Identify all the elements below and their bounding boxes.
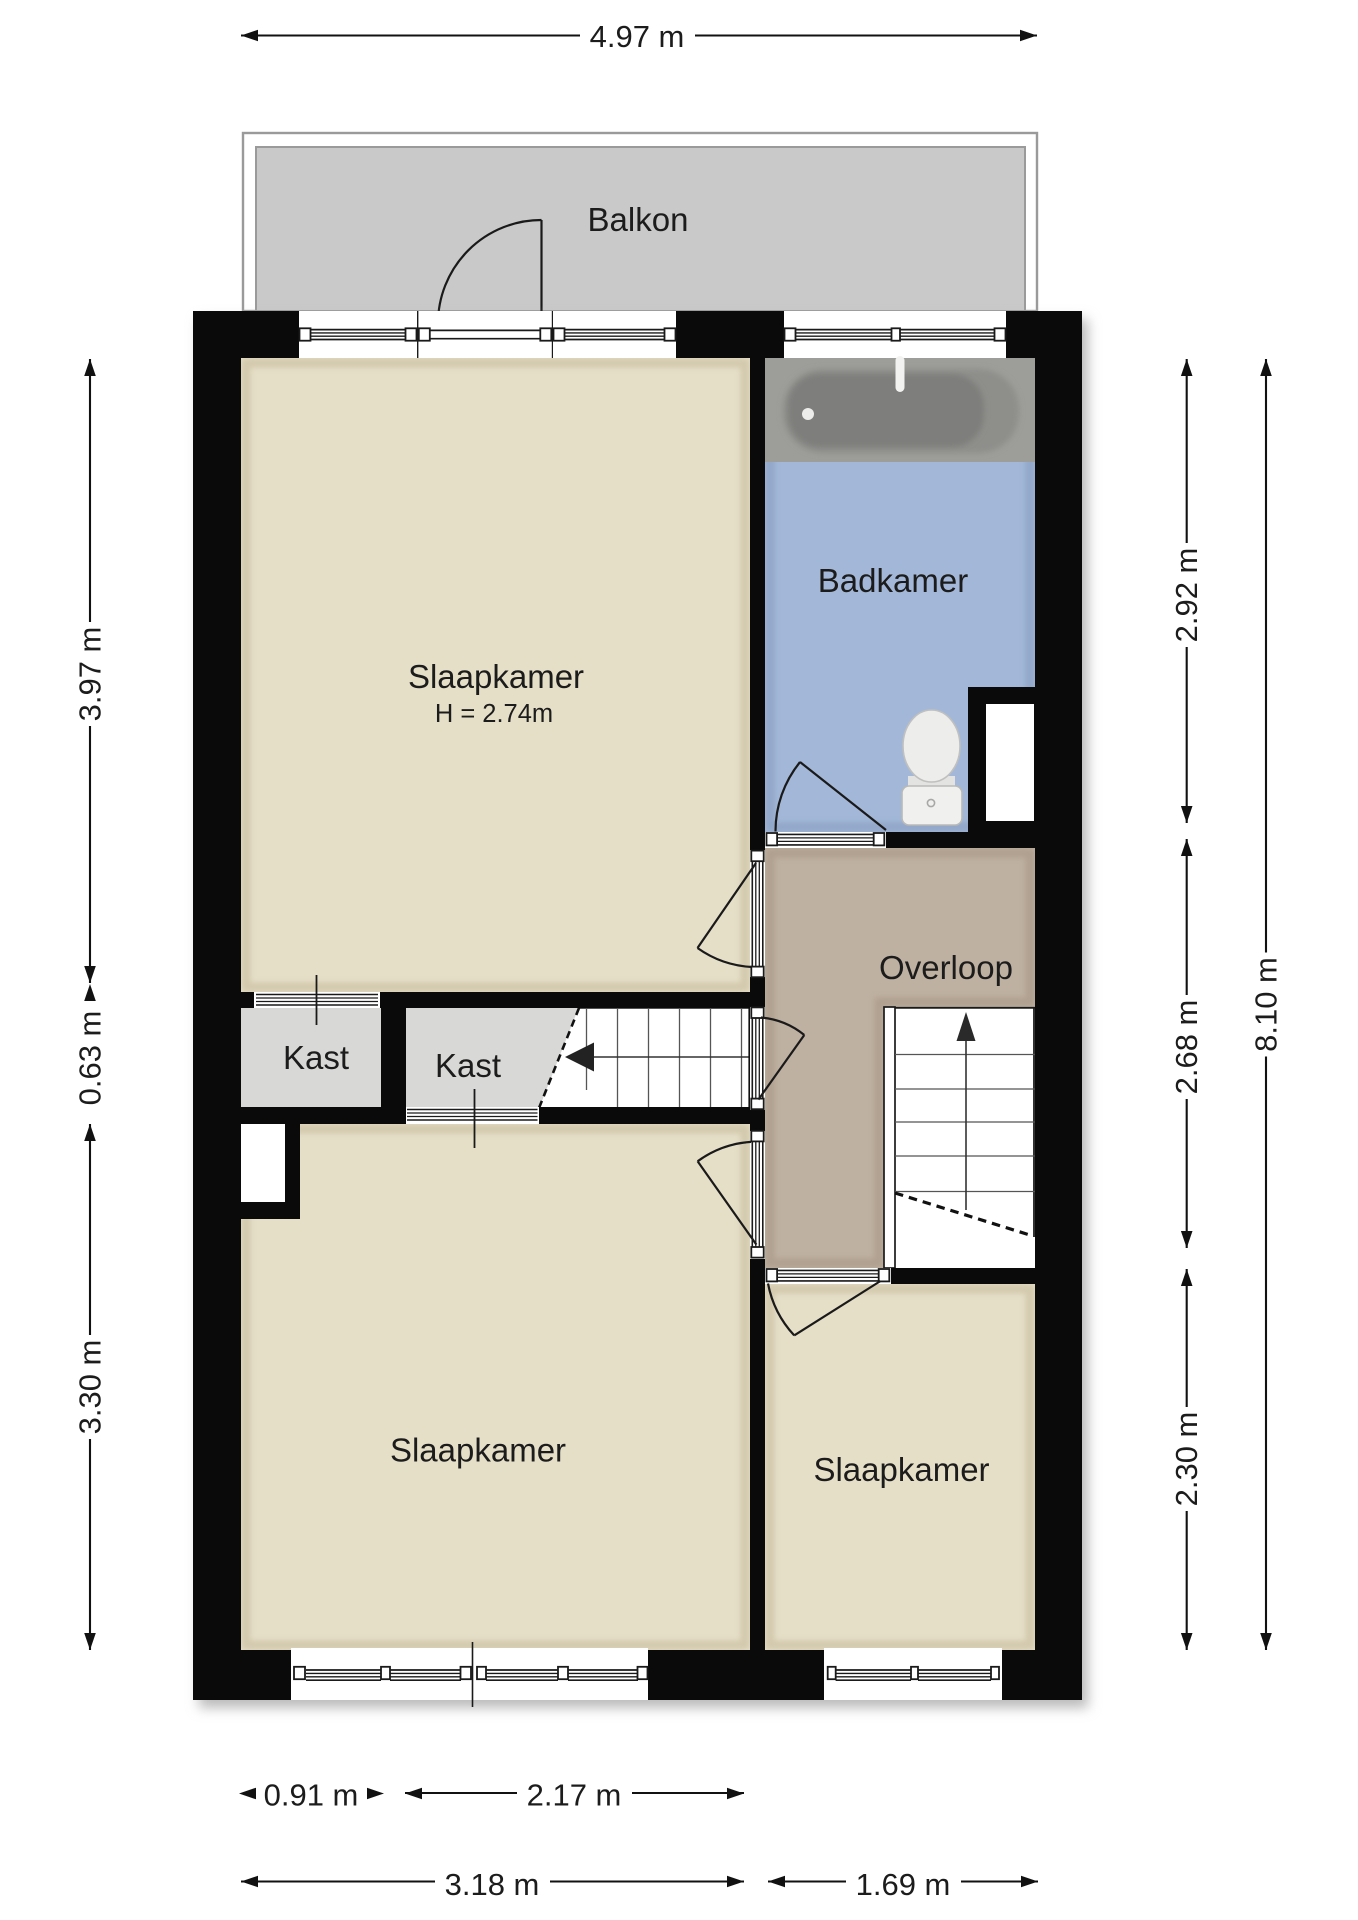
svg-text:Balkon: Balkon: [588, 201, 689, 238]
svg-text:2.30 m: 2.30 m: [1169, 1412, 1204, 1507]
svg-text:Slaapkamer: Slaapkamer: [390, 1432, 566, 1469]
svg-text:Overloop: Overloop: [879, 949, 1013, 986]
svg-text:2.92 m: 2.92 m: [1169, 548, 1204, 643]
svg-text:1.69 m: 1.69 m: [856, 1867, 951, 1902]
svg-text:3.30 m: 3.30 m: [73, 1340, 108, 1435]
svg-text:2.68 m: 2.68 m: [1169, 1000, 1204, 1095]
svg-text:Kast: Kast: [283, 1039, 349, 1076]
svg-text:H = 2.74m: H = 2.74m: [435, 700, 553, 728]
svg-text:Slaapkamer: Slaapkamer: [813, 1451, 989, 1488]
svg-text:0.91 m: 0.91 m: [264, 1778, 359, 1813]
svg-text:Badkamer: Badkamer: [818, 562, 968, 599]
svg-text:0.63 m: 0.63 m: [73, 1011, 108, 1106]
svg-text:4.97 m: 4.97 m: [590, 19, 685, 54]
svg-text:3.97 m: 3.97 m: [73, 627, 108, 722]
svg-text:2.17 m: 2.17 m: [527, 1778, 622, 1813]
svg-text:Kast: Kast: [435, 1047, 501, 1084]
svg-text:3.18 m: 3.18 m: [445, 1867, 540, 1902]
svg-text:Slaapkamer: Slaapkamer: [408, 658, 584, 695]
svg-text:8.10 m: 8.10 m: [1249, 957, 1284, 1052]
